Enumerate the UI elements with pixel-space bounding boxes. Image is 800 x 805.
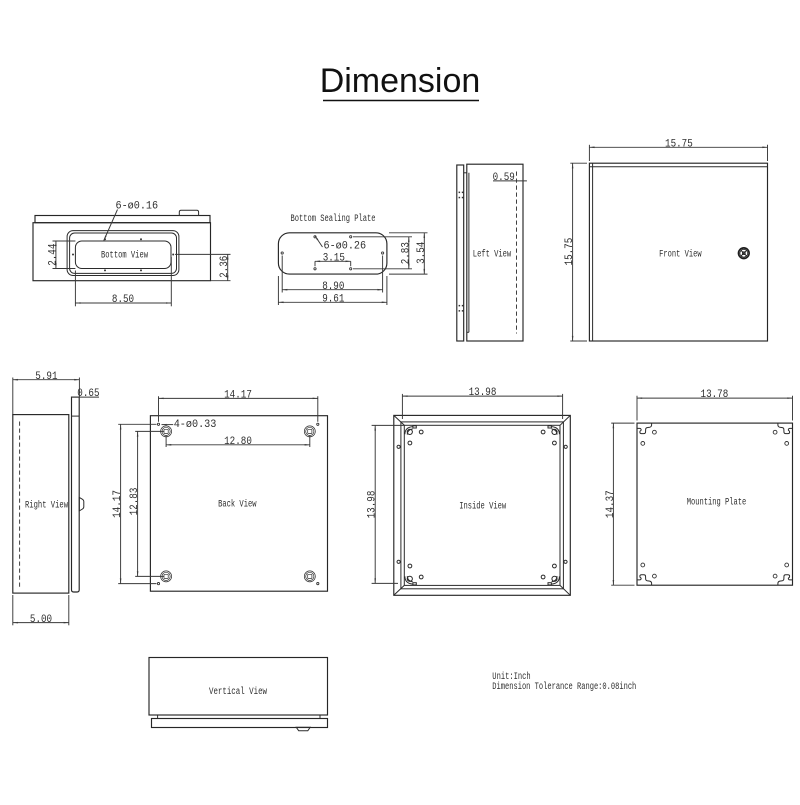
svg-text:2.83: 2.83 (400, 242, 412, 264)
svg-text:Right View: Right View (25, 499, 68, 511)
svg-text:Dimension Tolerance Range:0.08: Dimension Tolerance Range:0.08inch (492, 681, 636, 693)
svg-text:15.75: 15.75 (564, 238, 576, 266)
svg-text:5.00: 5.00 (30, 614, 52, 626)
svg-text:12.80: 12.80 (224, 436, 252, 448)
svg-text:0.65: 0.65 (77, 388, 99, 400)
svg-text:12.83: 12.83 (129, 488, 141, 516)
svg-text:Front View: Front View (659, 248, 702, 260)
svg-text:9.61: 9.61 (322, 293, 345, 305)
svg-text:5.91: 5.91 (35, 371, 58, 383)
svg-text:3.54: 3.54 (416, 241, 428, 264)
svg-text:Dimension: Dimension (320, 62, 481, 100)
svg-text:13.78: 13.78 (701, 389, 729, 401)
svg-text:13.98: 13.98 (469, 387, 497, 399)
svg-text:15.75: 15.75 (665, 138, 693, 150)
svg-text:0.59: 0.59 (493, 172, 515, 184)
svg-text:4-ø0.33: 4-ø0.33 (174, 419, 217, 431)
svg-text:6-ø0.26: 6-ø0.26 (324, 240, 367, 252)
svg-text:Mounting Plate: Mounting Plate (687, 497, 747, 509)
svg-text:2.36: 2.36 (219, 256, 231, 278)
svg-text:6-ø0.16: 6-ø0.16 (116, 201, 159, 213)
svg-text:13.98: 13.98 (367, 491, 379, 519)
svg-text:Vertical View: Vertical View (209, 686, 267, 698)
svg-text:8.90: 8.90 (322, 281, 344, 293)
svg-text:14.17: 14.17 (112, 490, 124, 518)
svg-text:Bottom View: Bottom View (101, 250, 148, 262)
svg-text:3.15: 3.15 (323, 252, 345, 264)
svg-text:14.17: 14.17 (224, 389, 252, 401)
svg-text:Left View: Left View (473, 249, 511, 261)
svg-text:2.44: 2.44 (47, 243, 59, 266)
svg-text:8.50: 8.50 (112, 294, 134, 306)
svg-text:Bottom Sealing Plate: Bottom Sealing Plate (291, 213, 376, 225)
svg-text:Back View: Back View (218, 499, 256, 511)
svg-text:Inside View: Inside View (459, 501, 506, 513)
svg-text:14.37: 14.37 (605, 490, 617, 518)
